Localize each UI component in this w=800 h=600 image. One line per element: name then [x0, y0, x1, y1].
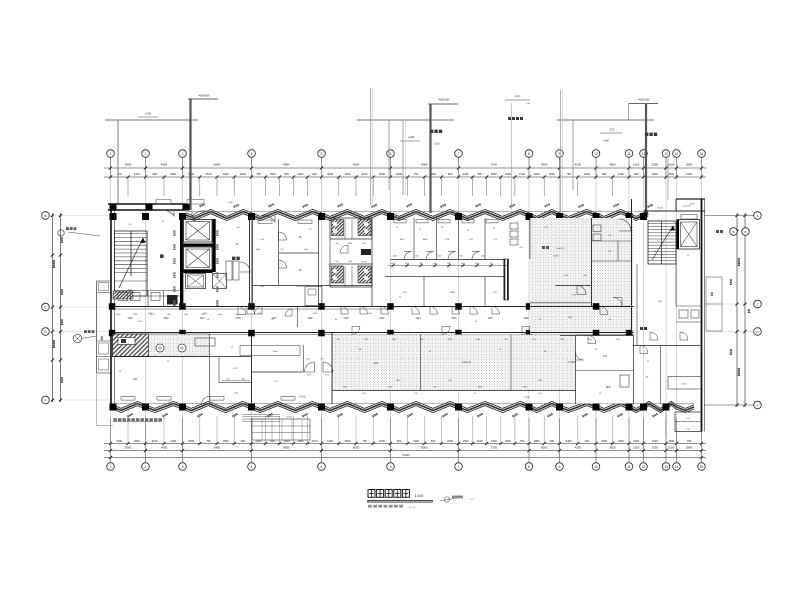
svg-text:3300: 3300 — [652, 172, 658, 176]
svg-text:1500: 1500 — [668, 172, 674, 176]
svg-text:900: 900 — [550, 439, 555, 443]
svg-text:1500: 1500 — [505, 172, 511, 176]
svg-text:2: 2 — [145, 152, 147, 156]
svg-text:F: F — [45, 398, 47, 402]
svg-text:7: 7 — [458, 152, 460, 156]
svg-text:1200: 1200 — [223, 172, 229, 176]
svg-text:15: 15 — [700, 152, 704, 156]
svg-text:600: 600 — [312, 172, 317, 176]
svg-text:1800: 1800 — [534, 439, 540, 443]
svg-text:1:100: 1:100 — [415, 494, 424, 498]
svg-text:8000: 8000 — [283, 446, 290, 450]
svg-text:4100: 4100 — [575, 162, 582, 166]
svg-text:2280: 2280 — [307, 318, 313, 320]
svg-text:1200: 1200 — [534, 172, 540, 176]
svg-text:1200: 1200 — [170, 439, 176, 443]
svg-text:2400: 2400 — [298, 172, 304, 176]
svg-text:4100: 4100 — [575, 446, 582, 450]
svg-text:1500: 1500 — [633, 446, 640, 450]
svg-text:2400: 2400 — [566, 439, 572, 443]
svg-text:T2-8: T2-8 — [445, 239, 450, 241]
svg-text:B: B — [744, 230, 746, 234]
svg-text:2400: 2400 — [618, 172, 624, 176]
svg-text:900: 900 — [448, 172, 453, 176]
svg-text:3650: 3650 — [609, 446, 616, 450]
svg-text:900: 900 — [304, 249, 307, 251]
svg-text:14: 14 — [675, 152, 679, 156]
svg-text:5.60: 5.60 — [435, 144, 440, 146]
svg-text:10: 10 — [594, 152, 598, 156]
svg-text:2350: 2350 — [652, 446, 659, 450]
svg-text:A: A — [756, 214, 758, 218]
svg-text:1800: 1800 — [270, 172, 276, 176]
svg-text:3000: 3000 — [541, 162, 548, 166]
svg-text:1.20: 1.20 — [515, 95, 520, 98]
svg-text:3300: 3300 — [327, 172, 333, 176]
svg-text:600: 600 — [306, 359, 309, 361]
svg-text:F: F — [757, 403, 759, 407]
svg-text:1M12: 1M12 — [228, 202, 234, 204]
svg-text:1400: 1400 — [348, 261, 352, 263]
svg-text:14: 14 — [675, 465, 679, 469]
svg-text:2100: 2100 — [477, 439, 483, 443]
svg-text:3: 3 — [182, 152, 184, 156]
svg-text:1500: 1500 — [487, 318, 493, 320]
svg-text:1500: 1500 — [463, 439, 469, 443]
svg-text:2800: 2800 — [686, 446, 693, 450]
svg-text:C08A: C08A — [449, 291, 455, 294]
svg-text:1:500: 1:500 — [681, 384, 687, 386]
svg-text:2400: 2400 — [127, 318, 133, 320]
svg-text:C4D: C4D — [226, 379, 230, 381]
svg-text:1800: 1800 — [379, 439, 385, 443]
svg-text:900: 900 — [284, 172, 289, 176]
svg-text:13: 13 — [664, 465, 668, 469]
svg-text:900: 900 — [335, 243, 338, 245]
svg-text:L7B: L7B — [572, 295, 576, 297]
svg-text:600: 600 — [431, 439, 436, 443]
svg-text:3900: 3900 — [125, 162, 132, 166]
svg-text:2100: 2100 — [362, 172, 368, 176]
svg-text:2100: 2100 — [686, 172, 692, 176]
svg-text:2400: 2400 — [343, 318, 349, 320]
svg-text:14F: 14F — [133, 377, 138, 381]
svg-text:4,300: 4,300 — [286, 417, 292, 419]
svg-text:1: 1 — [110, 465, 112, 469]
svg-text:W03: W03 — [307, 375, 311, 377]
svg-text:1000: 1000 — [668, 446, 675, 450]
svg-text:3300: 3300 — [235, 318, 241, 320]
svg-text:1:Ax2_B: 1:Ax2_B — [461, 361, 470, 364]
svg-text:1500: 1500 — [344, 172, 350, 176]
svg-text:2400: 2400 — [134, 172, 140, 176]
svg-text:8: 8 — [528, 152, 530, 156]
svg-text:2B: 2B — [299, 270, 302, 272]
svg-text:3650: 3650 — [609, 162, 616, 166]
svg-text:1200: 1200 — [437, 256, 441, 258]
svg-text:900: 900 — [397, 439, 402, 443]
svg-text:1200: 1200 — [491, 439, 497, 443]
svg-text:8000: 8000 — [353, 162, 360, 166]
svg-text:11: 11 — [627, 152, 631, 156]
svg-text:1500: 1500 — [393, 256, 397, 258]
svg-text:61500: 61500 — [402, 453, 410, 457]
svg-text:15: 15 — [700, 465, 704, 469]
svg-text:2B: 2B — [299, 237, 302, 239]
svg-text:(7x14): (7x14) — [299, 396, 306, 399]
svg-text:2600: 2600 — [568, 317, 572, 319]
svg-text:2100: 2100 — [152, 439, 158, 443]
svg-text:12,8Ha: 12,8Ha — [553, 256, 560, 258]
svg-text:5400: 5400 — [214, 162, 221, 166]
svg-text:1800: 1800 — [256, 249, 260, 251]
svg-text:750: 750 — [256, 172, 261, 176]
svg-text:1800: 1800 — [223, 439, 229, 443]
svg-text:+4.60: +4.60 — [603, 141, 610, 143]
svg-text:3300: 3300 — [170, 172, 176, 176]
svg-text:1800: 1800 — [584, 172, 590, 176]
svg-text:10: 10 — [594, 465, 598, 469]
svg-text:12: 12 — [642, 465, 646, 469]
svg-text:600: 600 — [270, 439, 275, 443]
svg-text:8000: 8000 — [353, 446, 360, 450]
svg-text:900: 900 — [459, 256, 462, 258]
svg-text:900: 900 — [362, 243, 365, 245]
svg-text:W2A: W2A — [525, 396, 530, 399]
svg-text:9600: 9600 — [163, 318, 169, 320]
svg-text:6: 6 — [390, 465, 392, 469]
svg-text:Y4aF: Y4aF — [272, 351, 278, 353]
svg-text:6: 6 — [390, 152, 392, 156]
svg-text:3300: 3300 — [284, 439, 290, 443]
svg-text:900: 900 — [335, 261, 338, 263]
svg-text:4: 4 — [251, 152, 253, 156]
svg-text:1: 1 — [110, 152, 112, 156]
svg-text:3300: 3300 — [116, 439, 122, 443]
svg-text:9600: 9600 — [379, 318, 385, 320]
svg-text:1400: 1400 — [260, 286, 264, 288]
svg-text:1,400: 1,400 — [564, 275, 569, 277]
svg-text:1500: 1500 — [298, 439, 304, 443]
svg-text:2400: 2400 — [413, 439, 419, 443]
svg-text:1500: 1500 — [134, 439, 140, 443]
svg-text:2400: 2400 — [463, 172, 469, 176]
svg-text:900: 900 — [241, 439, 246, 443]
svg-text:1240: 1240 — [415, 318, 421, 320]
svg-text:8: 8 — [528, 465, 530, 469]
svg-text:3600: 3600 — [188, 439, 194, 443]
svg-text:2100: 2100 — [205, 172, 211, 176]
svg-text:3300: 3300 — [601, 439, 607, 443]
svg-text:2350: 2350 — [652, 162, 659, 166]
svg-text:2: 2 — [145, 465, 147, 469]
svg-text:750: 750 — [414, 172, 419, 176]
svg-text:B: B — [732, 230, 734, 234]
svg-text:1400: 1400 — [241, 379, 245, 381]
svg-text:1200: 1200 — [379, 172, 385, 176]
svg-text:5: 5 — [321, 465, 323, 469]
svg-text:1000: 1000 — [668, 162, 675, 166]
svg-text:750: 750 — [687, 439, 692, 443]
svg-text:600: 600 — [153, 172, 158, 176]
svg-text:3300: 3300 — [491, 172, 497, 176]
svg-text:4000x600: 4000x600 — [198, 94, 210, 98]
svg-text:3600: 3600 — [344, 439, 350, 443]
svg-text:4: 4 — [251, 465, 253, 469]
svg-text:1500: 1500 — [618, 439, 624, 443]
svg-text:3600: 3600 — [549, 172, 555, 176]
svg-text:600: 600 — [415, 256, 418, 258]
svg-text:11: 11 — [627, 465, 631, 469]
svg-text:3: 3 — [182, 465, 184, 469]
svg-text:1240: 1240 — [199, 318, 205, 320]
svg-text:7700: 7700 — [491, 446, 498, 450]
svg-text:3600: 3600 — [396, 172, 402, 176]
svg-text:3600: 3600 — [668, 439, 674, 443]
svg-text:5.30: 5.30 — [610, 129, 615, 132]
svg-text:2400: 2400 — [256, 439, 262, 443]
svg-text:750: 750 — [280, 249, 283, 251]
svg-text:aB2: aB2 — [374, 362, 379, 365]
svg-text:750: 750 — [566, 172, 571, 176]
svg-text:4400: 4400 — [161, 446, 168, 450]
svg-text:4400: 4400 — [161, 162, 168, 166]
svg-text:900: 900 — [602, 172, 607, 176]
svg-text:7: 7 — [458, 465, 460, 469]
svg-text:W03: W03 — [325, 375, 329, 377]
svg-text:1903,600: 1903,600 — [296, 286, 304, 288]
svg-text:3000: 3000 — [541, 446, 548, 450]
svg-text:8000: 8000 — [283, 162, 290, 166]
svg-text:W7B1: W7B1 — [361, 262, 366, 264]
svg-text:2280: 2280 — [523, 318, 529, 320]
svg-text:1B/B: 1B/B — [606, 387, 611, 389]
svg-text:2800: 2800 — [686, 162, 693, 166]
svg-text:1400: 1400 — [348, 243, 352, 245]
svg-text:900: 900 — [320, 359, 323, 361]
svg-text:13: 13 — [664, 152, 668, 156]
svg-text:5400: 5400 — [214, 446, 221, 450]
svg-text:8000: 8000 — [421, 162, 428, 166]
svg-text:1/F 1m: 1/F 1m — [409, 507, 416, 509]
svg-text:1500: 1500 — [481, 256, 485, 258]
svg-text:4000x600: 4000x600 — [438, 98, 450, 102]
svg-text:2100: 2100 — [312, 439, 318, 443]
svg-text:1200: 1200 — [327, 439, 333, 443]
svg-text:600: 600 — [583, 275, 586, 277]
svg-text:600: 600 — [585, 439, 590, 443]
svg-text:3300: 3300 — [447, 439, 453, 443]
svg-text:+4.80: +4.80 — [408, 136, 415, 139]
svg-text:1200: 1200 — [652, 439, 658, 443]
svg-text:3,4x12,8: 3,4x12,8 — [556, 248, 565, 250]
svg-text:4000x600: 4000x600 — [638, 98, 650, 102]
svg-text:3600: 3600 — [240, 172, 246, 176]
svg-text:W7005: W7005 — [657, 207, 664, 209]
svg-text:1500: 1500 — [633, 162, 640, 166]
svg-text:5: 5 — [321, 152, 323, 156]
svg-text:2100: 2100 — [633, 439, 639, 443]
svg-text:600: 600 — [634, 172, 639, 176]
svg-text:750: 750 — [520, 439, 525, 443]
svg-text:2100: 2100 — [519, 172, 525, 176]
svg-text:8000: 8000 — [421, 446, 428, 450]
svg-text:9: 9 — [559, 465, 561, 469]
svg-text:3600: 3600 — [505, 439, 511, 443]
svg-text:620: 620 — [519, 247, 522, 249]
svg-text:7700: 7700 — [491, 162, 498, 166]
svg-text:750: 750 — [206, 439, 211, 443]
svg-text:+4.80: +4.80 — [145, 113, 152, 116]
svg-text:750: 750 — [362, 439, 367, 443]
svg-text:600: 600 — [477, 172, 482, 176]
svg-text:3900: 3900 — [125, 446, 132, 450]
svg-text:1s: 1s — [122, 299, 124, 301]
svg-text:3300: 3300 — [451, 318, 457, 320]
